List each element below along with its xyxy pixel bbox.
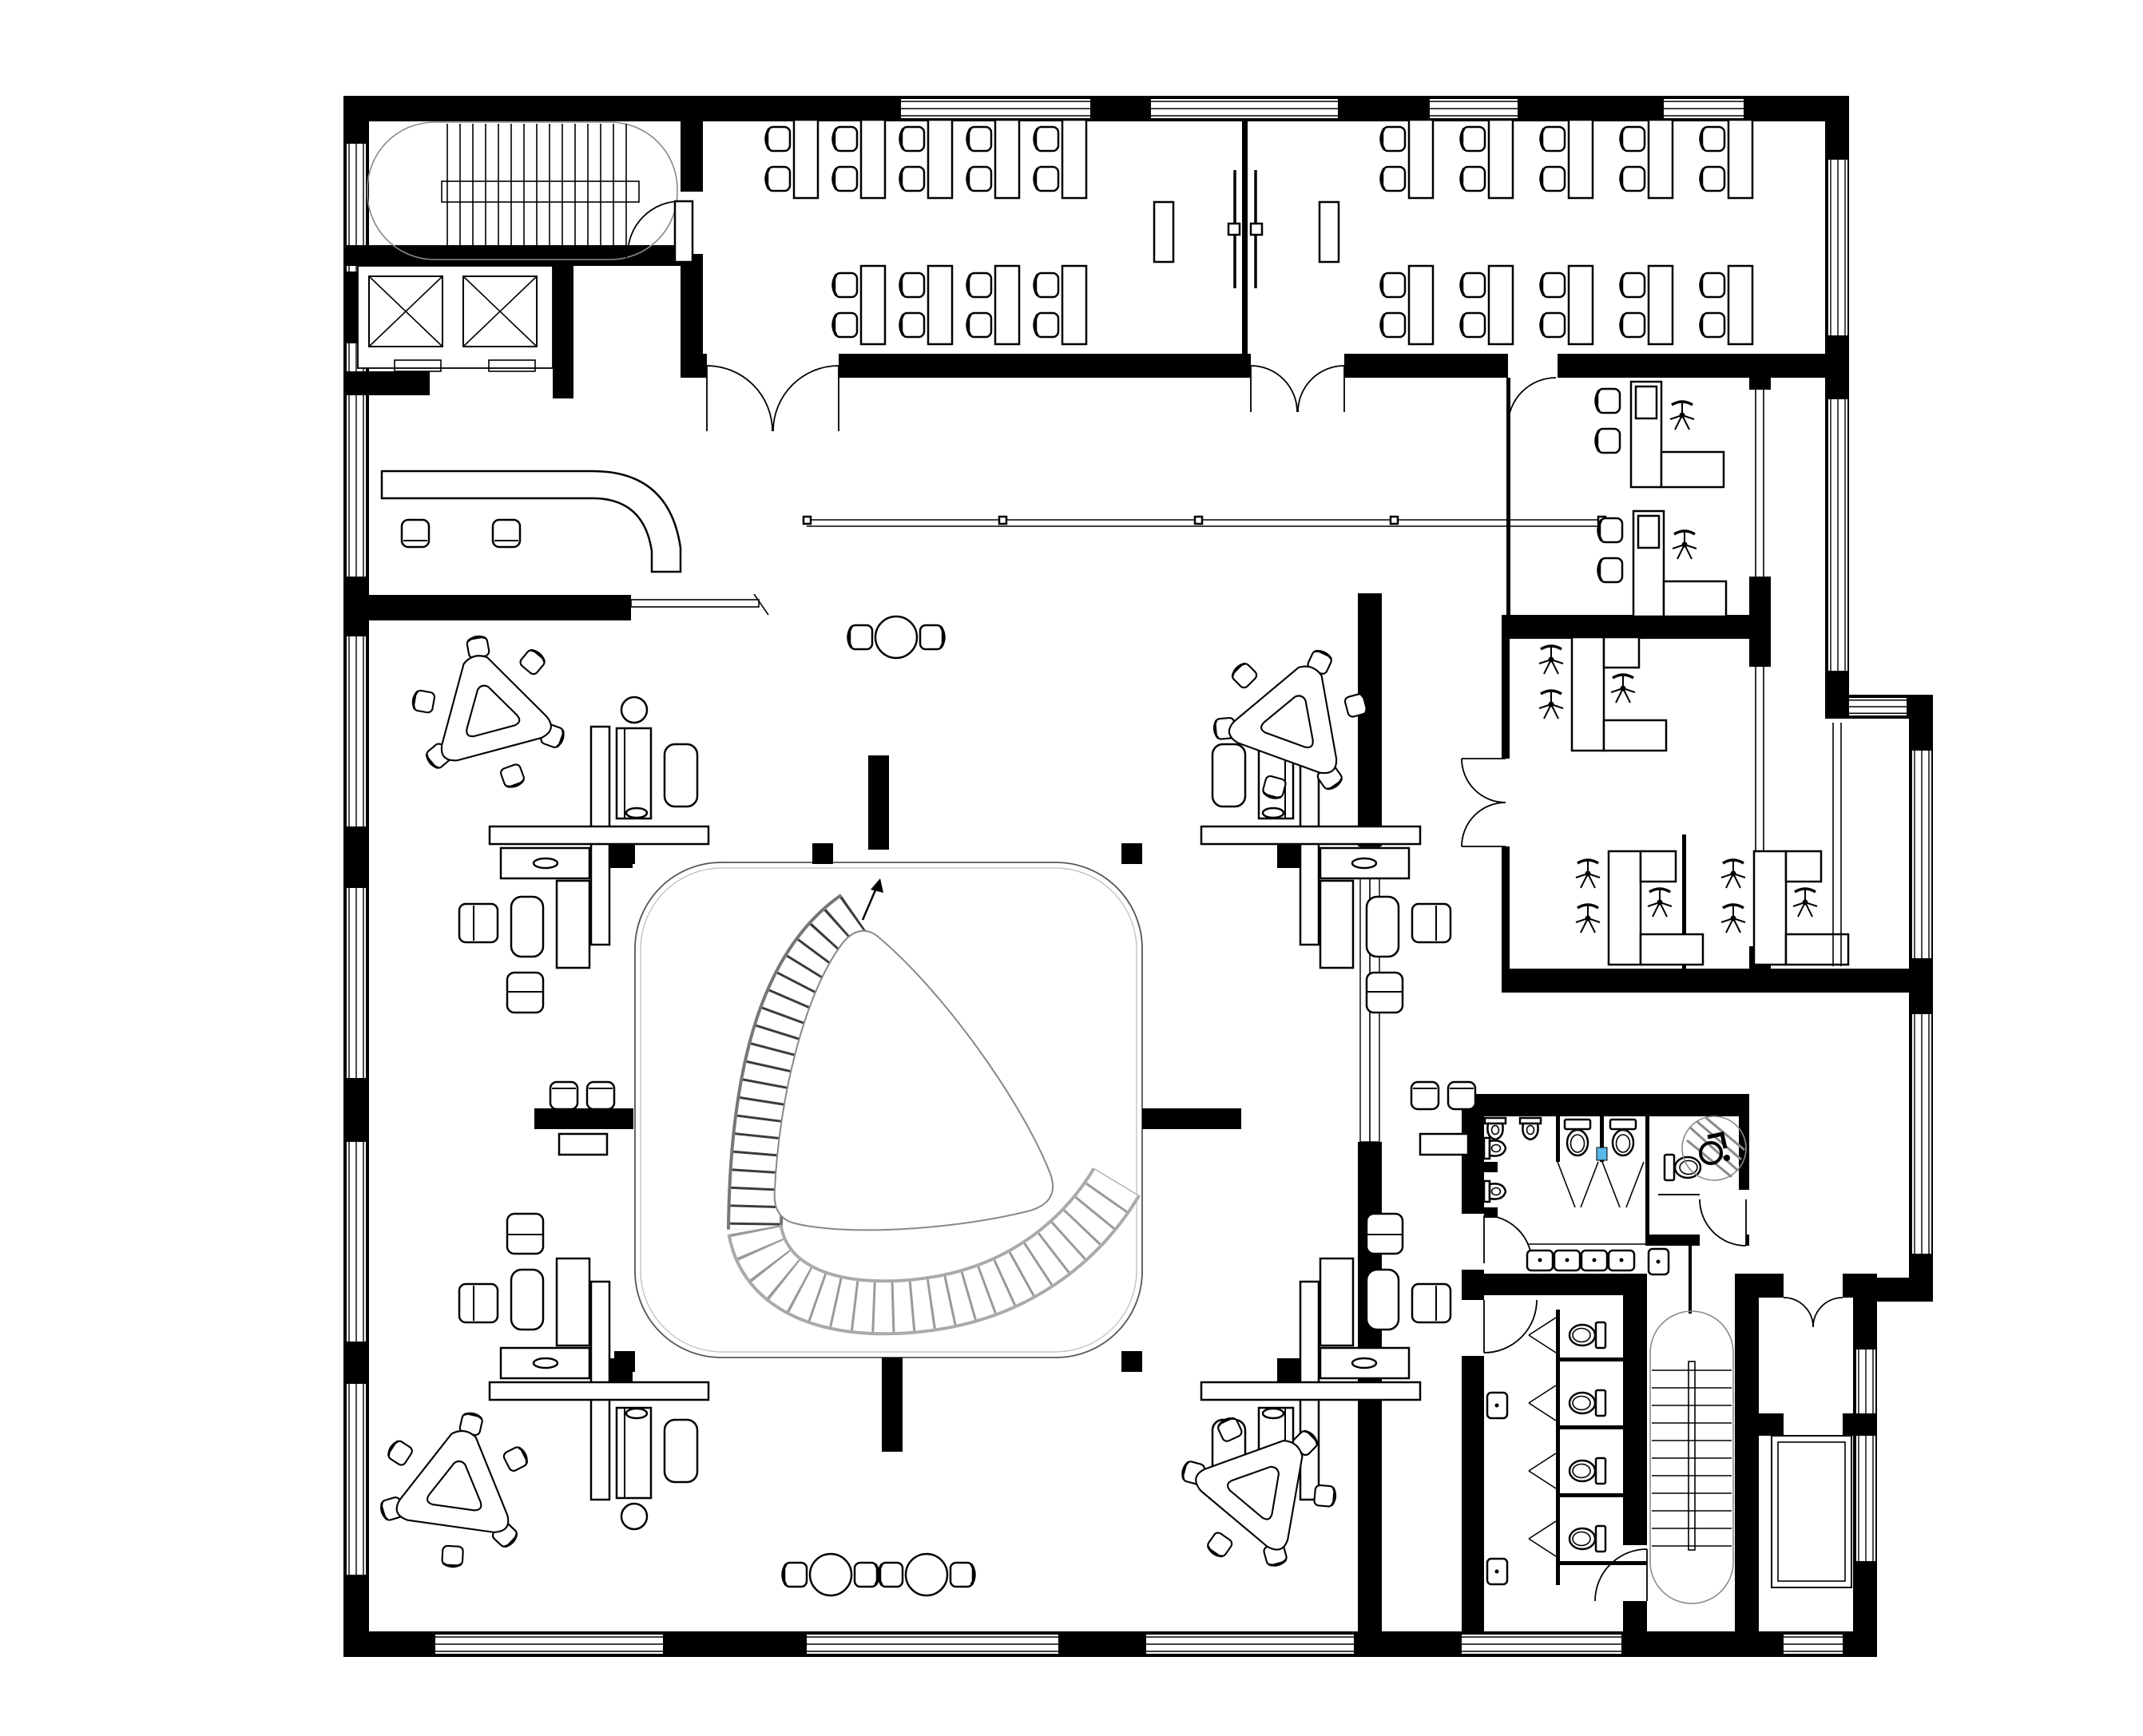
wheelchair-turning-circle — [1682, 1116, 1746, 1180]
glazed-screen — [804, 517, 1605, 526]
accessible-washroom — [1645, 1116, 1749, 1246]
classroom-east — [1320, 120, 1752, 344]
elevator-bank — [358, 266, 553, 371]
reception-rail — [631, 600, 759, 607]
stairwell-southeast — [1650, 1311, 1733, 1603]
floor-plan — [0, 0, 2143, 1736]
stairwell-northwest — [367, 122, 677, 260]
classroom-west — [675, 120, 1173, 344]
janitor-closet — [1649, 1243, 1690, 1314]
stall-lock-indicator — [1597, 1147, 1607, 1160]
stair-direction-arrow — [863, 878, 883, 920]
lectern — [1320, 202, 1339, 262]
lectern — [675, 201, 693, 262]
mens-washroom — [1484, 1116, 1649, 1270]
lectern — [1154, 202, 1173, 262]
entrance-vestibule — [1772, 1436, 1851, 1587]
atrium — [534, 755, 1241, 1452]
private-office-northeast — [1596, 382, 1726, 616]
reception — [382, 471, 768, 615]
floor-plan-drawing — [0, 0, 2143, 1736]
feature-stair — [755, 878, 1117, 1307]
east-glazing — [1833, 723, 1841, 966]
team-rooms-east — [1539, 637, 1848, 965]
